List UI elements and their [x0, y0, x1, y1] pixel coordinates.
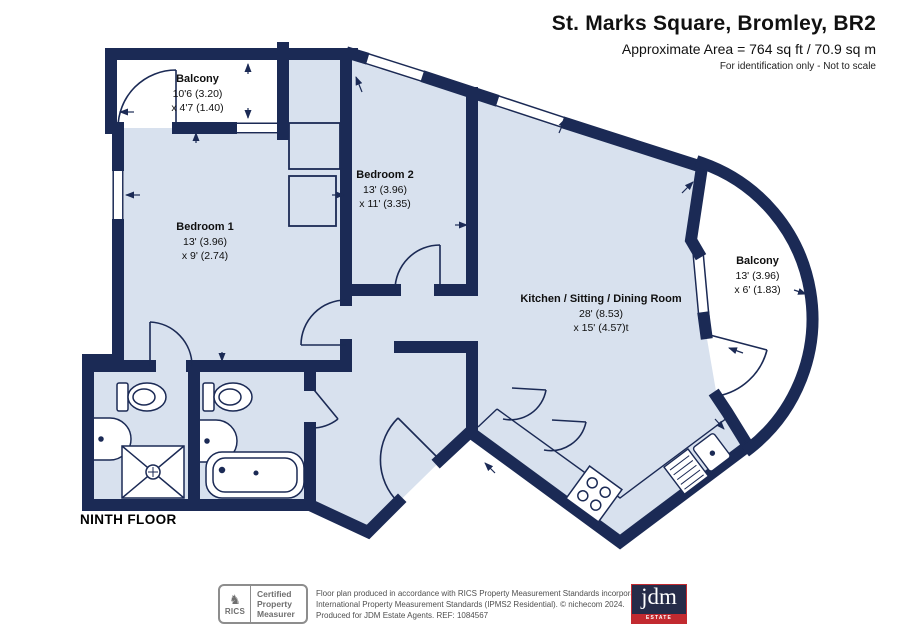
rics-badge-text: Certified Property Measurer: [251, 586, 306, 622]
footer-disclaimer: Floor plan produced in accordance with R…: [316, 588, 648, 621]
approximate-area: Approximate Area = 764 sq ft / 70.9 sq m: [552, 41, 876, 57]
floor-plan-drawing: [0, 0, 900, 636]
floor-plan-page: St. Marks Square, Bromley, BR2 Approxima…: [0, 0, 900, 636]
floor-label: NINTH FLOOR: [80, 512, 177, 527]
disclaimer-line: Produced for JDM Estate Agents. REF: 108…: [316, 610, 648, 621]
toilet-cistern-icon: [117, 383, 128, 411]
rics-line: Property: [257, 599, 306, 609]
rics-brand: RICS: [225, 607, 245, 616]
agent-logo: jdm ESTATE AGENTS: [631, 584, 687, 624]
disclaimer-line: Floor plan produced in accordance with R…: [316, 588, 648, 599]
agent-logo-tagline: ESTATE AGENTS: [632, 614, 686, 623]
rics-badge-left: ♞ RICS: [220, 586, 251, 622]
identification-note: For identification only - Not to scale: [552, 61, 876, 72]
balcony-top-floor: [105, 48, 290, 134]
page-title: St. Marks Square, Bromley, BR2: [552, 12, 876, 36]
disclaimer-line: International Property Measurement Stand…: [316, 599, 648, 610]
agent-logo-name: jdm: [632, 584, 686, 614]
toilet-cistern-icon: [203, 383, 214, 411]
rics-badge: ♞ RICS Certified Property Measurer: [218, 584, 308, 624]
rics-line: Certified: [257, 589, 306, 599]
header: St. Marks Square, Bromley, BR2 Approxima…: [552, 12, 876, 72]
rics-line: Measurer: [257, 609, 306, 619]
rics-lion-icon: ♞: [229, 593, 241, 606]
